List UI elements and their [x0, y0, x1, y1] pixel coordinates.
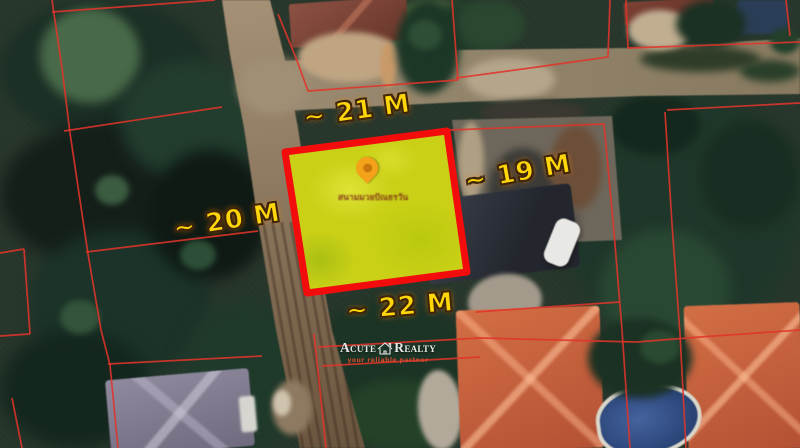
boundary-line: [52, 0, 215, 12]
boundary-lines-svg: [0, 0, 800, 448]
boundary-line: [0, 334, 30, 336]
boundary-line: [626, 0, 800, 48]
cadastral-boundary-lines: [0, 0, 800, 448]
brand-tagline: your reliable partner: [336, 357, 440, 364]
boundary-line: [667, 103, 800, 110]
boundary-line: [52, 0, 118, 448]
brand-row: Acute Realty: [336, 340, 440, 356]
boundary-line: [314, 334, 326, 448]
boundary-line: [456, 0, 610, 78]
brand-name-first: Acute: [340, 340, 376, 356]
house-logo-icon: [377, 342, 393, 355]
watermark-logo: Acute Realty your reliable partner: [336, 340, 440, 364]
plot-border: [285, 131, 467, 293]
boundary-line: [476, 302, 620, 312]
boundary-line: [24, 249, 30, 334]
boundary-line: [0, 249, 24, 253]
boundary-line: [64, 107, 222, 131]
brand-name-second: Realty: [394, 340, 436, 356]
boundary-line: [12, 398, 22, 448]
boundary-line: [786, 0, 790, 36]
boundary-line: [665, 112, 686, 448]
boundary-line: [108, 356, 262, 364]
satellite-map: สนามมวยปัณธรวัน ~ 21 M ~ 19 M ~ 20 M ~ 2…: [0, 0, 800, 448]
boundary-line: [278, 14, 458, 91]
pin-place-label: สนามมวยปัณธรวัน: [323, 194, 423, 203]
boundary-line: [452, 0, 458, 80]
